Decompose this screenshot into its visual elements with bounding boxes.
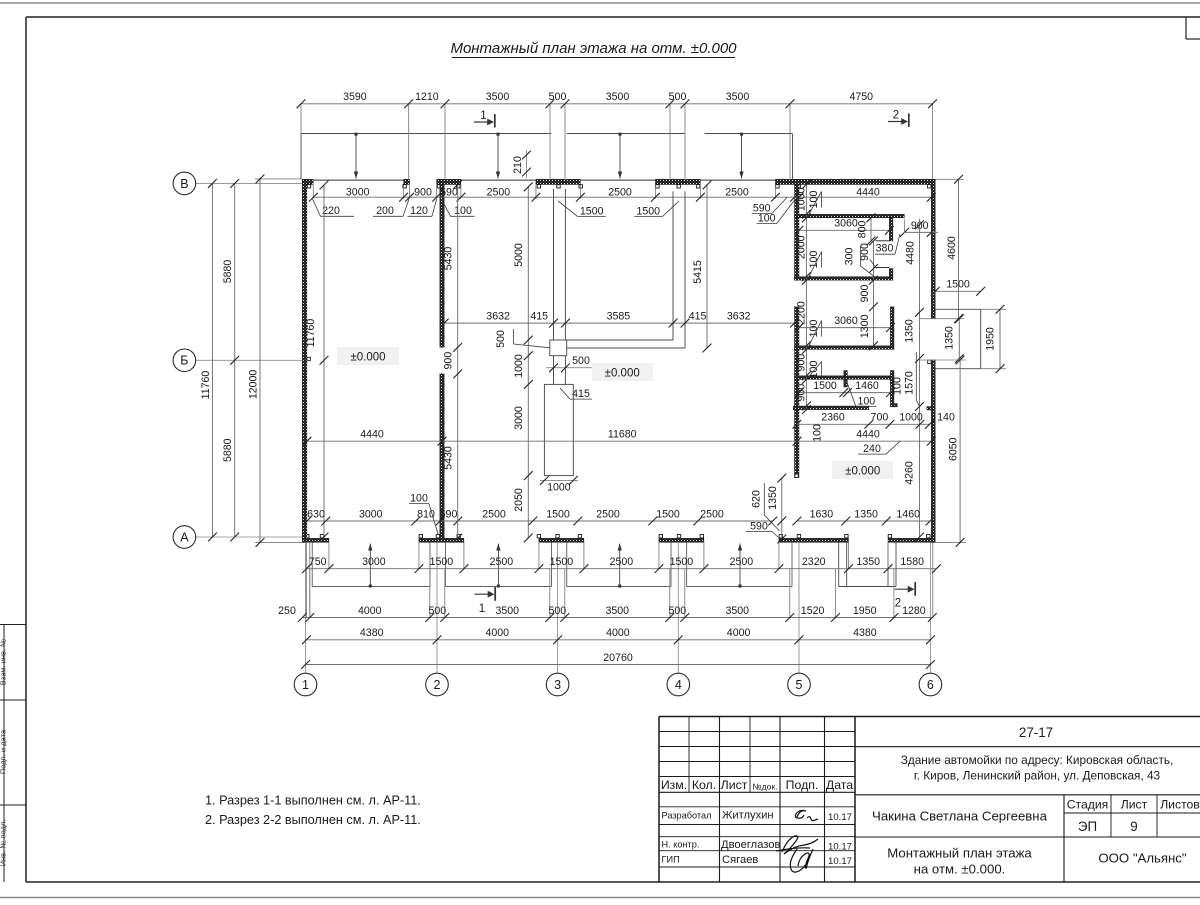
svg-text:2500: 2500 <box>490 556 514 568</box>
svg-text:27-17: 27-17 <box>1019 725 1053 740</box>
svg-text:1000: 1000 <box>796 187 808 211</box>
svg-text:6050: 6050 <box>948 437 960 461</box>
svg-text:100: 100 <box>812 424 824 442</box>
svg-text:11760: 11760 <box>305 319 317 348</box>
svg-text:4000: 4000 <box>606 627 630 639</box>
svg-text:Сягаев: Сягаев <box>722 854 758 866</box>
svg-text:6: 6 <box>927 678 934 692</box>
svg-text:Дата: Дата <box>826 778 853 792</box>
svg-text:1: 1 <box>479 603 485 615</box>
svg-text:1300: 1300 <box>859 314 871 338</box>
svg-text:3500: 3500 <box>496 605 520 617</box>
svg-text:1280: 1280 <box>902 605 926 617</box>
svg-text:4600: 4600 <box>946 236 958 260</box>
svg-text:2320: 2320 <box>802 556 826 568</box>
svg-text:±0.000: ±0.000 <box>350 352 385 364</box>
svg-text:2050: 2050 <box>513 488 525 512</box>
svg-text:500: 500 <box>668 605 686 617</box>
svg-text:1500: 1500 <box>670 556 694 568</box>
svg-text:2: 2 <box>895 598 901 610</box>
svg-text:1520: 1520 <box>801 605 825 617</box>
svg-text:Лист: Лист <box>721 778 748 792</box>
svg-text:4380: 4380 <box>853 627 877 639</box>
svg-text:1210: 1210 <box>415 91 439 103</box>
svg-text:300: 300 <box>844 247 856 265</box>
svg-text:3000: 3000 <box>513 406 525 430</box>
svg-text:2500: 2500 <box>482 508 506 520</box>
svg-text:1460: 1460 <box>896 508 920 520</box>
svg-text:1: 1 <box>480 110 486 122</box>
svg-text:2200: 2200 <box>796 301 808 325</box>
svg-text:3590: 3590 <box>343 91 367 103</box>
svg-text:5000: 5000 <box>513 243 525 267</box>
svg-text:3000: 3000 <box>346 186 370 198</box>
svg-text:Лист: Лист <box>1121 798 1148 812</box>
svg-text:2500: 2500 <box>610 556 634 568</box>
svg-text:250: 250 <box>278 605 296 617</box>
svg-text:900: 900 <box>859 285 871 303</box>
svg-text:4750: 4750 <box>850 91 874 103</box>
svg-text:2. Разрез 2-2 выполнен см. л.: 2. Разрез 2-2 выполнен см. л. АР-11. <box>205 813 421 827</box>
svg-text:415: 415 <box>530 311 548 323</box>
svg-text:1570: 1570 <box>904 371 916 395</box>
svg-text:9: 9 <box>1130 819 1137 834</box>
svg-text:1500: 1500 <box>550 556 574 568</box>
svg-text:500: 500 <box>548 605 566 617</box>
svg-text:1500: 1500 <box>546 508 570 520</box>
svg-text:10.17: 10.17 <box>828 812 852 823</box>
svg-text:10.17: 10.17 <box>828 842 852 853</box>
svg-text:3000: 3000 <box>359 508 383 520</box>
svg-text:3500: 3500 <box>486 91 510 103</box>
svg-text:11760: 11760 <box>200 371 212 400</box>
svg-text:Монтажный план этажа на отм. ±: Монтажный план этажа на отм. ±0.000 <box>450 40 737 57</box>
svg-text:220: 220 <box>322 205 340 217</box>
svg-text:1500: 1500 <box>430 556 454 568</box>
svg-text:5430: 5430 <box>443 247 455 271</box>
svg-text:3: 3 <box>554 678 561 692</box>
svg-text:Стадия: Стадия <box>1067 798 1109 812</box>
svg-text:4000: 4000 <box>486 627 510 639</box>
svg-text:620: 620 <box>751 490 763 508</box>
svg-text:1950: 1950 <box>985 327 997 351</box>
svg-text:Изм.: Изм. <box>661 778 687 792</box>
svg-text:1950: 1950 <box>853 605 877 617</box>
svg-text:2500: 2500 <box>725 186 749 198</box>
svg-text:Здание автомойки по адресу: Ки: Здание автомойки по адресу: Кировская об… <box>901 753 1174 767</box>
svg-text:5: 5 <box>796 678 803 692</box>
svg-text:Двоеглазов: Двоеглазов <box>721 839 781 851</box>
svg-text:Подп. и дата: Подп. и дата <box>0 729 8 774</box>
svg-text:3060: 3060 <box>834 315 858 327</box>
svg-text:380: 380 <box>876 243 894 255</box>
svg-text:ЭП: ЭП <box>1078 819 1097 834</box>
svg-text:4480: 4480 <box>905 241 917 265</box>
svg-text:100: 100 <box>410 493 428 505</box>
svg-text:100: 100 <box>758 213 776 225</box>
svg-text:500: 500 <box>572 355 590 367</box>
svg-text:11680: 11680 <box>608 429 637 441</box>
svg-text:1000: 1000 <box>547 482 571 494</box>
svg-text:4440: 4440 <box>360 429 384 441</box>
svg-text:900: 900 <box>443 352 455 370</box>
svg-text:Подп.: Подп. <box>786 778 819 792</box>
svg-text:1: 1 <box>302 678 309 692</box>
svg-text:590: 590 <box>750 520 768 532</box>
svg-text:г. Киров, Ленинский район, ул.: г. Киров, Ленинский район, ул. Деповская… <box>914 769 1161 783</box>
svg-text:140: 140 <box>937 412 955 424</box>
svg-text:500: 500 <box>669 91 687 103</box>
svg-text:590: 590 <box>440 186 458 198</box>
svg-text:3632: 3632 <box>727 311 751 323</box>
svg-text:Монтажный план этажа: Монтажный план этажа <box>887 846 1032 861</box>
svg-text:Житлухин: Житлухин <box>722 810 774 822</box>
svg-text:5880: 5880 <box>222 438 234 462</box>
svg-text:120: 120 <box>410 205 428 217</box>
svg-text:2500: 2500 <box>730 556 754 568</box>
svg-text:590: 590 <box>440 508 458 520</box>
svg-text:Инв. № подл.: Инв. № подл. <box>0 820 8 867</box>
svg-text:1000: 1000 <box>899 412 923 424</box>
svg-text:1460: 1460 <box>855 380 879 392</box>
svg-text:2360: 2360 <box>821 412 845 424</box>
svg-text:900: 900 <box>796 354 808 372</box>
svg-text:1. Разрез 1-1 выполнен см. л.: 1. Разрез 1-1 выполнен см. л. АР-11. <box>205 794 421 808</box>
svg-text:500: 500 <box>495 330 507 348</box>
svg-text:2000: 2000 <box>796 235 808 259</box>
svg-text:12000: 12000 <box>247 370 259 400</box>
svg-text:А: А <box>180 530 189 544</box>
svg-text:3632: 3632 <box>486 311 510 323</box>
svg-text:1500: 1500 <box>637 206 661 218</box>
svg-text:Взам. инв. №: Взам. инв. № <box>0 639 8 685</box>
svg-text:210: 210 <box>512 156 524 174</box>
svg-text:10.17: 10.17 <box>828 856 852 867</box>
svg-text:800: 800 <box>856 220 868 238</box>
svg-text:Н. контр.: Н. контр. <box>662 840 700 850</box>
svg-text:±0.000: ±0.000 <box>845 466 880 478</box>
svg-text:1350: 1350 <box>767 486 779 510</box>
svg-text:3500: 3500 <box>606 91 630 103</box>
svg-text:4260: 4260 <box>903 461 915 485</box>
svg-text:5415: 5415 <box>692 260 704 284</box>
svg-text:100: 100 <box>857 396 875 408</box>
svg-text:ООО "Альянс": ООО "Альянс" <box>1098 851 1186 866</box>
svg-text:100: 100 <box>892 377 904 395</box>
svg-text:100: 100 <box>454 205 472 217</box>
svg-text:на отм. ±0.000.: на отм. ±0.000. <box>914 862 1006 877</box>
svg-text:4380: 4380 <box>360 627 384 639</box>
svg-text:4440: 4440 <box>856 186 880 198</box>
svg-text:5880: 5880 <box>222 260 234 284</box>
svg-text:3500: 3500 <box>606 605 630 617</box>
svg-text:1580: 1580 <box>900 556 924 568</box>
svg-text:2500: 2500 <box>608 186 632 198</box>
svg-text:1500: 1500 <box>656 508 680 520</box>
svg-text:4: 4 <box>675 678 682 692</box>
svg-text:ГИП: ГИП <box>662 855 680 865</box>
svg-text:Разработал: Разработал <box>662 811 712 821</box>
svg-text:500: 500 <box>549 91 567 103</box>
svg-text:В: В <box>180 177 188 191</box>
svg-text:1350: 1350 <box>944 326 956 350</box>
svg-text:415: 415 <box>572 388 590 400</box>
svg-text:500: 500 <box>428 605 446 617</box>
svg-text:2500: 2500 <box>596 508 620 520</box>
svg-text:±0.000: ±0.000 <box>605 368 640 380</box>
svg-text:2500: 2500 <box>700 508 724 520</box>
svg-text:3000: 3000 <box>362 556 386 568</box>
svg-text:240: 240 <box>863 443 881 455</box>
svg-text:415: 415 <box>689 311 707 323</box>
svg-text:Листов: Листов <box>1160 798 1200 812</box>
svg-text:3060: 3060 <box>834 218 858 230</box>
svg-text:700: 700 <box>871 412 889 424</box>
svg-text:5430: 5430 <box>443 446 455 470</box>
svg-text:1350: 1350 <box>903 319 915 343</box>
svg-text:2: 2 <box>893 110 899 122</box>
svg-text:3585: 3585 <box>607 311 631 323</box>
svg-text:1500: 1500 <box>946 279 970 291</box>
svg-text:2500: 2500 <box>487 186 511 198</box>
svg-text:4440: 4440 <box>856 429 880 441</box>
svg-text:1000: 1000 <box>513 354 525 378</box>
svg-text:630: 630 <box>307 508 325 520</box>
svg-text:900: 900 <box>414 186 432 198</box>
svg-text:20760: 20760 <box>603 652 633 664</box>
svg-text:1350: 1350 <box>857 556 881 568</box>
svg-text:200: 200 <box>376 205 394 217</box>
svg-text:1500: 1500 <box>813 380 837 392</box>
svg-text:1350: 1350 <box>854 508 878 520</box>
svg-text:3500: 3500 <box>726 91 750 103</box>
svg-text:3500: 3500 <box>726 605 750 617</box>
svg-text:Кол.: Кол. <box>692 778 716 792</box>
svg-text:4000: 4000 <box>727 627 751 639</box>
svg-text:№док.: №док. <box>752 782 777 792</box>
svg-text:2: 2 <box>434 678 441 692</box>
svg-text:1500: 1500 <box>580 206 604 218</box>
svg-text:750: 750 <box>309 556 327 568</box>
svg-text:Чакина Светлана Сергеевна: Чакина Светлана Сергеевна <box>872 809 1048 824</box>
svg-text:Б: Б <box>180 354 188 368</box>
svg-text:4000: 4000 <box>358 605 382 617</box>
svg-text:1630: 1630 <box>810 508 834 520</box>
